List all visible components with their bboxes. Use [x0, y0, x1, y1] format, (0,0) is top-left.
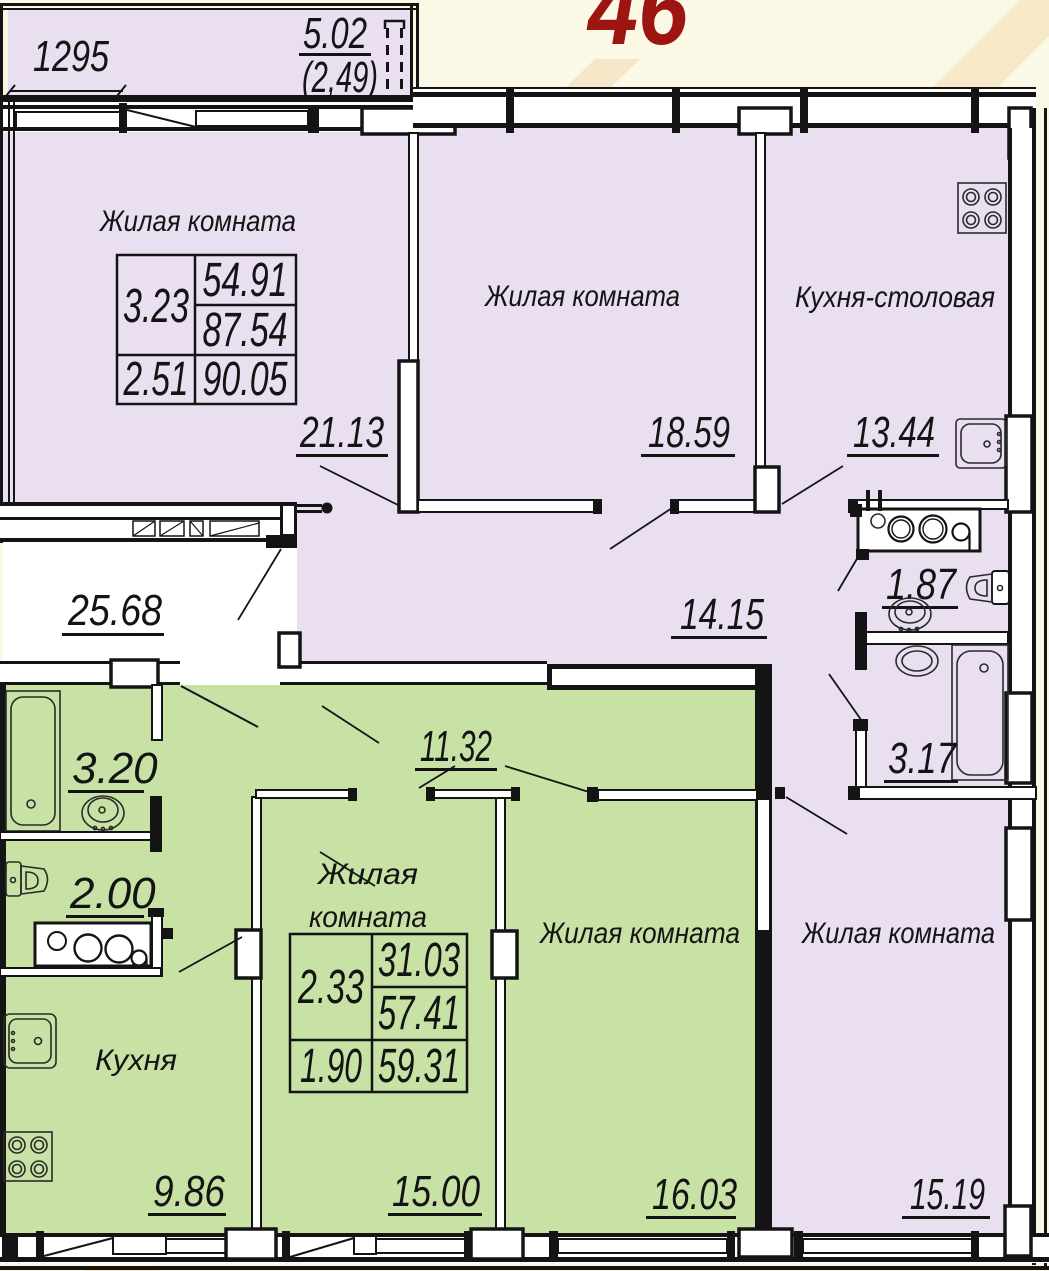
svg-text:59.31: 59.31 [378, 1040, 460, 1093]
svg-text:18.59: 18.59 [648, 408, 730, 457]
svg-text:5.02: 5.02 [303, 9, 367, 58]
svg-text:Жилая комната: Жилая комната [538, 917, 740, 950]
svg-text:комната: комната [309, 901, 427, 934]
svg-text:3.23: 3.23 [123, 280, 189, 333]
svg-text:14.15: 14.15 [680, 590, 764, 639]
svg-text:25.68: 25.68 [67, 586, 162, 635]
svg-text:(2,49): (2,49) [302, 53, 378, 102]
svg-text:2.33: 2.33 [297, 961, 364, 1014]
svg-text:15.00: 15.00 [392, 1167, 480, 1216]
svg-text:Жилая комната: Жилая комната [483, 280, 680, 313]
svg-text:1295: 1295 [33, 32, 109, 81]
svg-text:Кухня: Кухня [95, 1044, 177, 1077]
svg-text:15.19: 15.19 [910, 1170, 985, 1219]
svg-text:90.05: 90.05 [203, 353, 288, 406]
svg-text:31.03: 31.03 [378, 934, 460, 987]
svg-text:2.51: 2.51 [123, 353, 189, 406]
svg-text:Жилая комната: Жилая комната [98, 205, 296, 238]
svg-text:54.91: 54.91 [203, 254, 288, 307]
svg-text:13.44: 13.44 [853, 408, 935, 457]
svg-text:1.90: 1.90 [300, 1040, 362, 1093]
svg-text:46: 46 [586, 0, 689, 66]
svg-text:Кухня-столовая: Кухня-столовая [795, 281, 995, 314]
svg-text:Жилая: Жилая [316, 858, 418, 891]
svg-text:3.20: 3.20 [72, 744, 158, 793]
svg-text:3.17: 3.17 [888, 734, 957, 783]
svg-text:87.54: 87.54 [203, 304, 288, 357]
svg-text:16.03: 16.03 [652, 1170, 737, 1219]
svg-text:9.86: 9.86 [153, 1167, 225, 1216]
svg-text:57.41: 57.41 [378, 987, 460, 1040]
svg-text:Жилая комната: Жилая комната [800, 917, 995, 950]
svg-text:2.00: 2.00 [69, 869, 156, 918]
svg-text:11.32: 11.32 [420, 722, 492, 771]
svg-text:21.13: 21.13 [299, 408, 384, 457]
